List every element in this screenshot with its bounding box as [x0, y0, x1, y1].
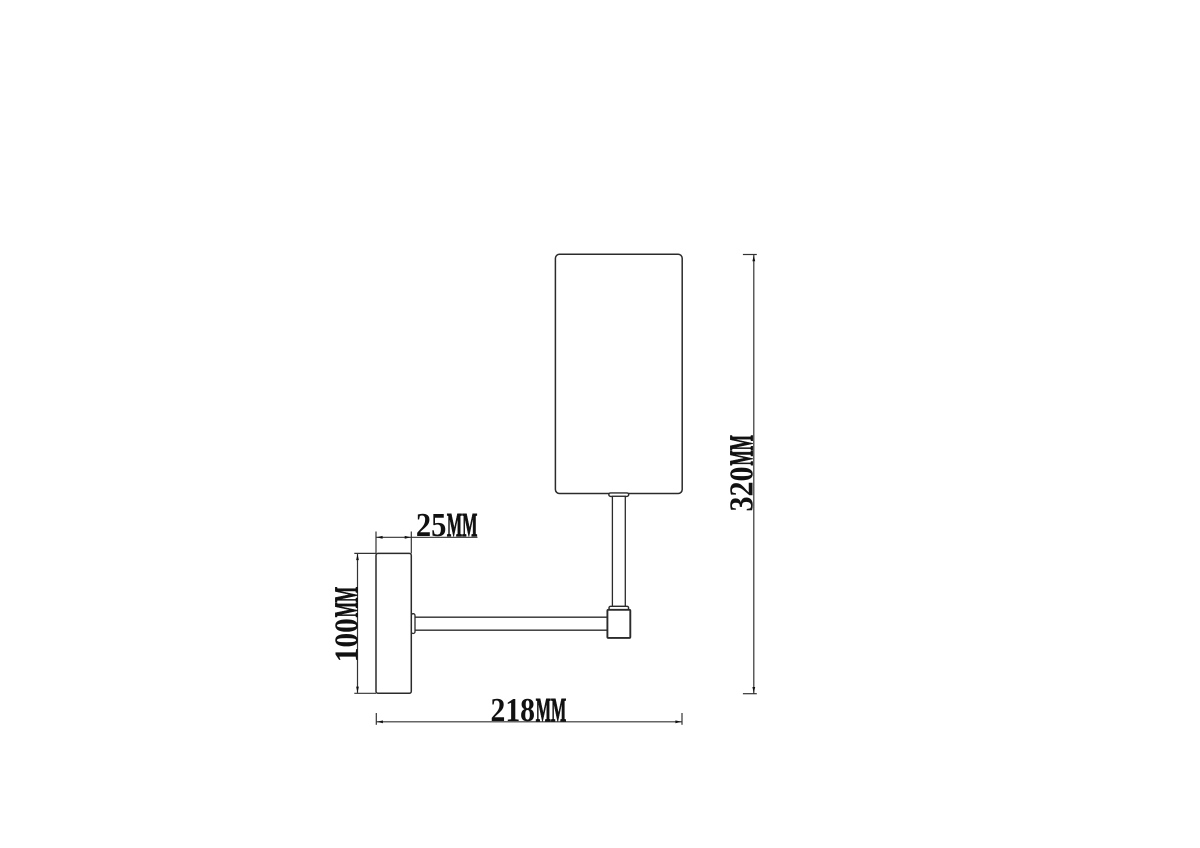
- svg-text:MM: MM: [328, 587, 365, 618]
- svg-text:MM: MM: [447, 507, 478, 544]
- svg-text:25: 25: [416, 507, 447, 544]
- svg-text:MM: MM: [536, 692, 567, 729]
- svg-text:100: 100: [328, 618, 365, 662]
- svg-text:320: 320: [724, 467, 761, 512]
- svg-text:MM: MM: [724, 435, 761, 466]
- svg-text:218: 218: [491, 692, 536, 729]
